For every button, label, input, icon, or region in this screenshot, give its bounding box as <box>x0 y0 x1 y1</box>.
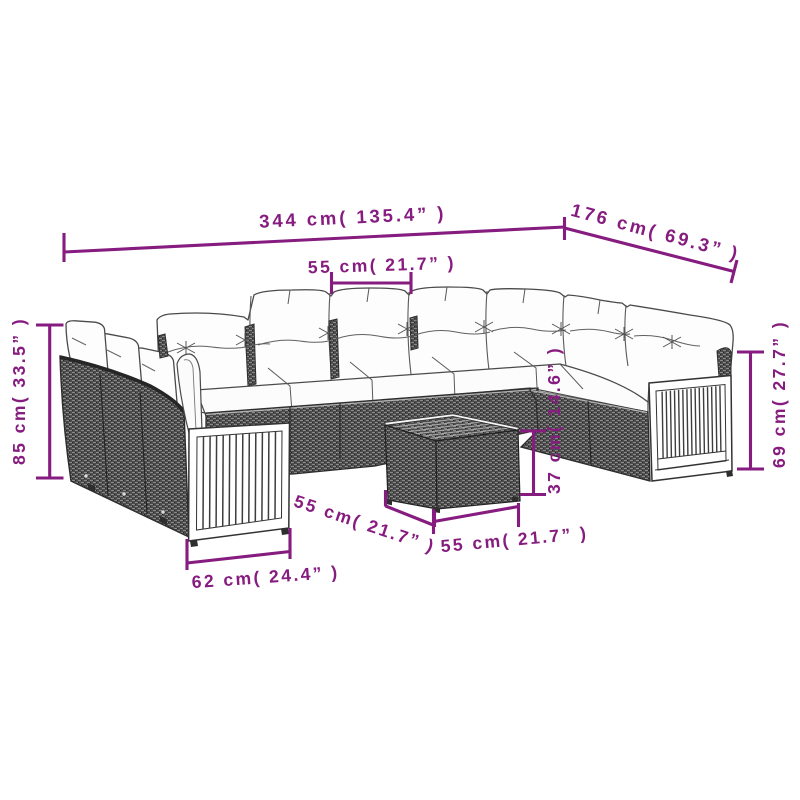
svg-text:85 cm( 33.5” ): 85 cm( 33.5” ) <box>9 317 29 465</box>
svg-text:69 cm( 27.7” ): 69 cm( 27.7” ) <box>769 320 789 468</box>
svg-text:37 cm( 14.6” ): 37 cm( 14.6” ) <box>544 346 564 494</box>
